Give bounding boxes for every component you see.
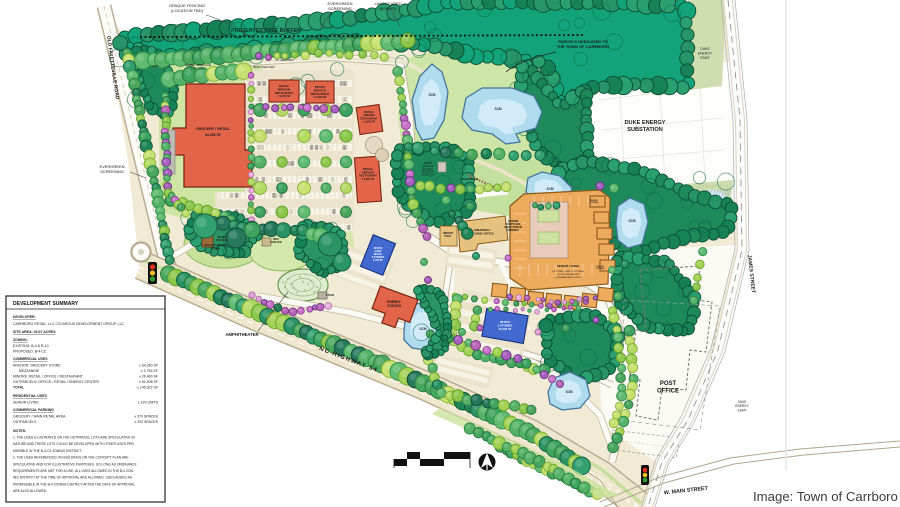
svg-text:MINORS: RETAIL / OFFICE / REST: MINORS: RETAIL / OFFICE / RESTAURANT [13, 375, 84, 379]
svg-text:MEZZANINE: MEZZANINE [13, 369, 40, 373]
svg-text:COMMERCIAL PARKING: COMMERCIAL PARKING [13, 408, 54, 412]
svg-text:± 26,400 SF: ± 26,400 SF [139, 375, 158, 379]
svg-text:ZONING:: ZONING: [13, 338, 28, 342]
svg-text:SCM: SCM [628, 219, 635, 223]
svg-text:1. THE USES ILLUSTRATED ON THE: 1. THE USES ILLUSTRATED ON THE OUTPARCEL… [13, 436, 135, 440]
svg-text:SPECULATIVE AND FOR ILLUSTRATI: SPECULATIVE AND FOR ILLUSTRATIVE PURPOSE… [13, 462, 138, 466]
svg-text:GROCERY / RETAIL: GROCERY / RETAIL [196, 127, 230, 131]
svg-text:PERMISSIBLE IN THE B-4 ZONING: PERMISSIBLE IN THE B-4 ZONING DISTRICT A… [13, 482, 135, 486]
svg-text:ING DISTRICT AT THE TIME OF AP: ING DISTRICT AT THE TIME OF APPROVAL ARE… [13, 476, 133, 480]
svg-text:SENIOR LIVING: SENIOR LIVING [13, 401, 39, 405]
svg-text:02' GREENWAY: 02' GREENWAY [276, 58, 295, 62]
svg-text:SCM: SCM [419, 327, 426, 331]
svg-text:AMPHITHEATER: AMPHITHEATER [226, 332, 259, 337]
svg-text:DEVELOPMENT SUMMARY: DEVELOPMENT SUMMARY [13, 301, 79, 307]
svg-text:EVERGREENSCREENING: EVERGREENSCREENING [327, 1, 352, 11]
svg-text:SCM: SCM [546, 187, 553, 191]
svg-text:STAGE: STAGE [326, 294, 335, 297]
svg-text:± 64,260 SF: ± 64,260 SF [139, 364, 158, 368]
svg-text:GROCERY / MAIN RETAIL AREA: GROCERY / MAIN RETAIL AREA [13, 415, 66, 419]
svg-text:POSTOFFICE: POSTOFFICE [657, 381, 679, 395]
svg-text:PRESERVED TREE BUFFER: PRESERVED TREE BUFFER [231, 28, 301, 34]
svg-text:± 2,754 SF: ± 2,754 SF [141, 369, 158, 373]
svg-text:NOTES:: NOTES: [13, 429, 26, 433]
svg-text:NATURE AND THESE LOTS COULD BE: NATURE AND THESE LOTS COULD BE DEVELOPED… [13, 442, 135, 446]
svg-text:RESIDENTIAL USES: RESIDENTIAL USES [13, 394, 47, 398]
svg-text:REQUIREMENTS ARE MET FOR A USE: REQUIREMENTS ARE MET FOR A USE, ALL USES… [13, 469, 134, 473]
svg-text:TOTAL: TOTAL [13, 386, 25, 390]
svg-text:OUTPARCELS: OUTPARCELS [13, 420, 37, 424]
svg-text:± 51,908 SF: ± 51,908 SF [139, 380, 158, 384]
svg-text:64,250 SF: 64,250 SF [205, 133, 221, 137]
svg-text:± 220 UNITS: ± 220 UNITS [138, 401, 159, 405]
svg-text:AMENITIES /LEASING OFFICE: AMENITIES /LEASING OFFICE [470, 228, 494, 236]
svg-text:PROPOSED: B-4-CZ: PROPOSED: B-4-CZ [13, 350, 47, 354]
svg-text:COMMERCIAL USES: COMMERCIAL USES [13, 357, 48, 361]
svg-text:CARRBORO RETAIL, LLC C/O ARGUS: CARRBORO RETAIL, LLC C/O ARGUS DEVELOPME… [13, 322, 125, 326]
svg-text:2. THE USES REFERENCED ON BUIL: 2. THE USES REFERENCED ON BUILDINGS ON T… [13, 456, 129, 460]
svg-text:SITE AREA: 40.07 ACRES: SITE AREA: 40.07 ACRES [13, 330, 56, 334]
svg-text:PARCELS DEDICATED TOTHE TOWN O: PARCELS DEDICATED TOTHE TOWN OF CARRBORO [557, 39, 610, 49]
svg-text:EXISTING: B-4 & R-10: EXISTING: B-4 & R-10 [13, 344, 49, 348]
svg-text:DUKE ENERGYSUBSTATION: DUKE ENERGYSUBSTATION [624, 120, 665, 133]
svg-text:ENERGYSTATION: ENERGYSTATION [387, 300, 401, 308]
svg-text:SCM: SCM [428, 93, 435, 97]
svg-text:SENIOR LIVING: SENIOR LIVING [557, 264, 580, 268]
svg-text:SCM: SCM [565, 390, 572, 394]
svg-text:SCM: SCM [494, 107, 501, 111]
svg-text:± 202 SPACES: ± 202 SPACES [134, 420, 158, 424]
svg-text:Image: Town of Carrboro: Image: Town of Carrboro [753, 489, 898, 504]
svg-text:SIGN: SIGN [152, 65, 158, 68]
svg-text:SHADEPAVILION: SHADEPAVILION [216, 236, 228, 242]
svg-text:OPAQUE FENCING(LOCATION TBD): OPAQUE FENCING(LOCATION TBD) [169, 3, 205, 13]
svg-text:BOARDWALK: BOARDWALK [462, 178, 479, 181]
svg-text:DEVELOPER:: DEVELOPER: [13, 315, 36, 319]
svg-text:± 370 SPACES: ± 370 SPACES [134, 415, 158, 419]
svg-text:EVERGREENSCREENING: EVERGREENSCREENING [99, 164, 124, 174]
svg-text:± 145,322 SF: ± 145,322 SF [137, 386, 158, 390]
svg-text:MISSIBLE IN THE B-4-CZ ZONING: MISSIBLE IN THE B-4-CZ ZONING DISTRICT. [13, 449, 82, 453]
svg-text:ANCHOR: GROCERY STORE: ANCHOR: GROCERY STORE [13, 364, 61, 368]
svg-text:BIKE SHELTER: BIKE SHELTER [253, 65, 275, 69]
svg-text:OUTPARCELS: OFFICE / RETAIL /: OUTPARCELS: OFFICE / RETAIL / ENERGY CEN… [13, 380, 99, 384]
svg-text:ARE ALSO ALLOWED.: ARE ALSO ALLOWED. [13, 489, 47, 493]
